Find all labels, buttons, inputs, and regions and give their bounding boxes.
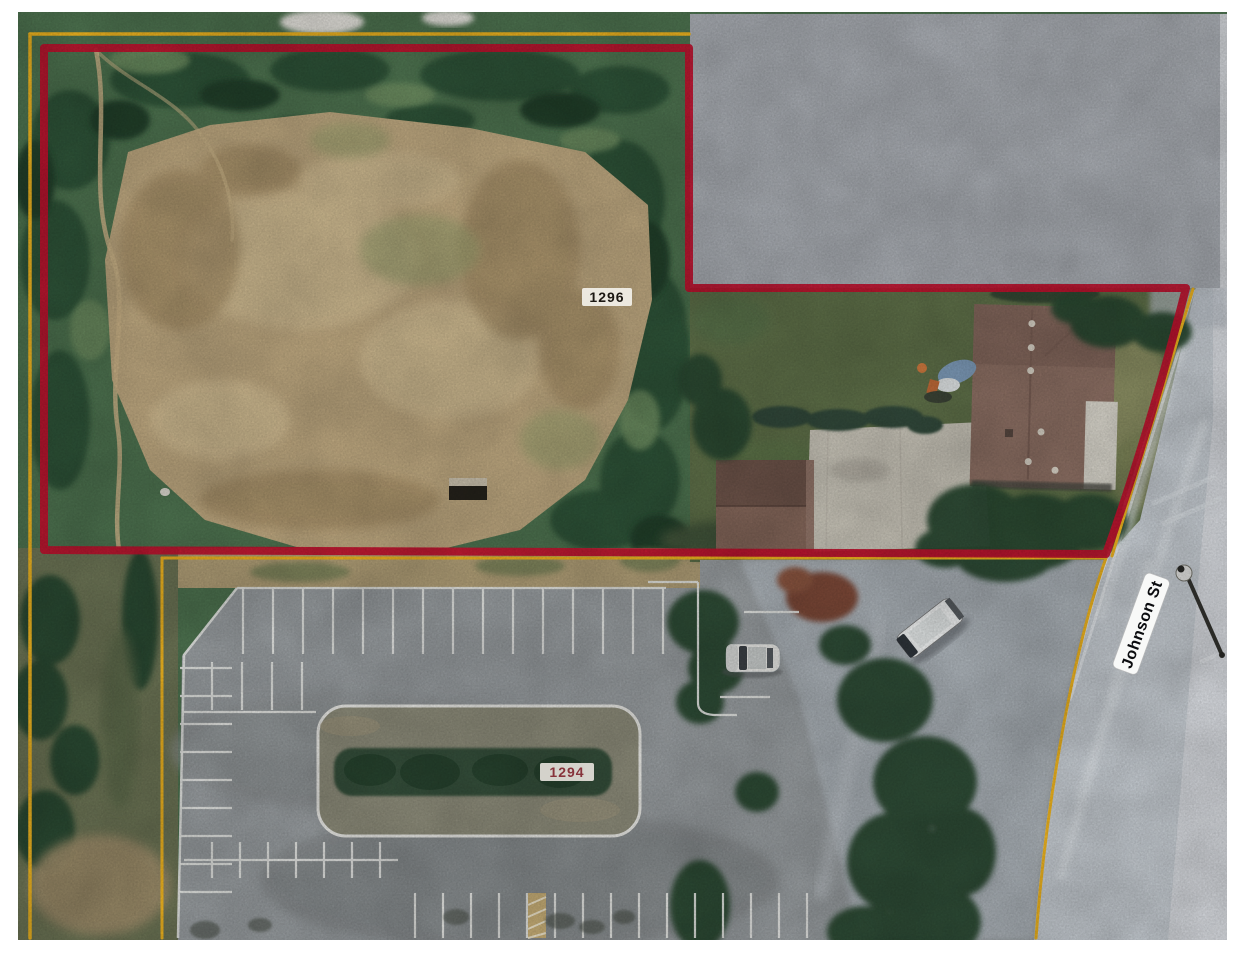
parcel-label-upper-text: 1296: [589, 289, 624, 305]
scan-blotch: [18, 12, 1227, 940]
parcel-label-lower-text: 1294: [549, 764, 584, 780]
parcel-label-upper: 1296: [582, 288, 632, 306]
aerial-photo: 1296 1294 Johnson St: [0, 0, 1242, 960]
aerial-photo-page: 1296 1294 Johnson St: [0, 0, 1242, 960]
parcel-label-lower: 1294: [540, 763, 594, 781]
